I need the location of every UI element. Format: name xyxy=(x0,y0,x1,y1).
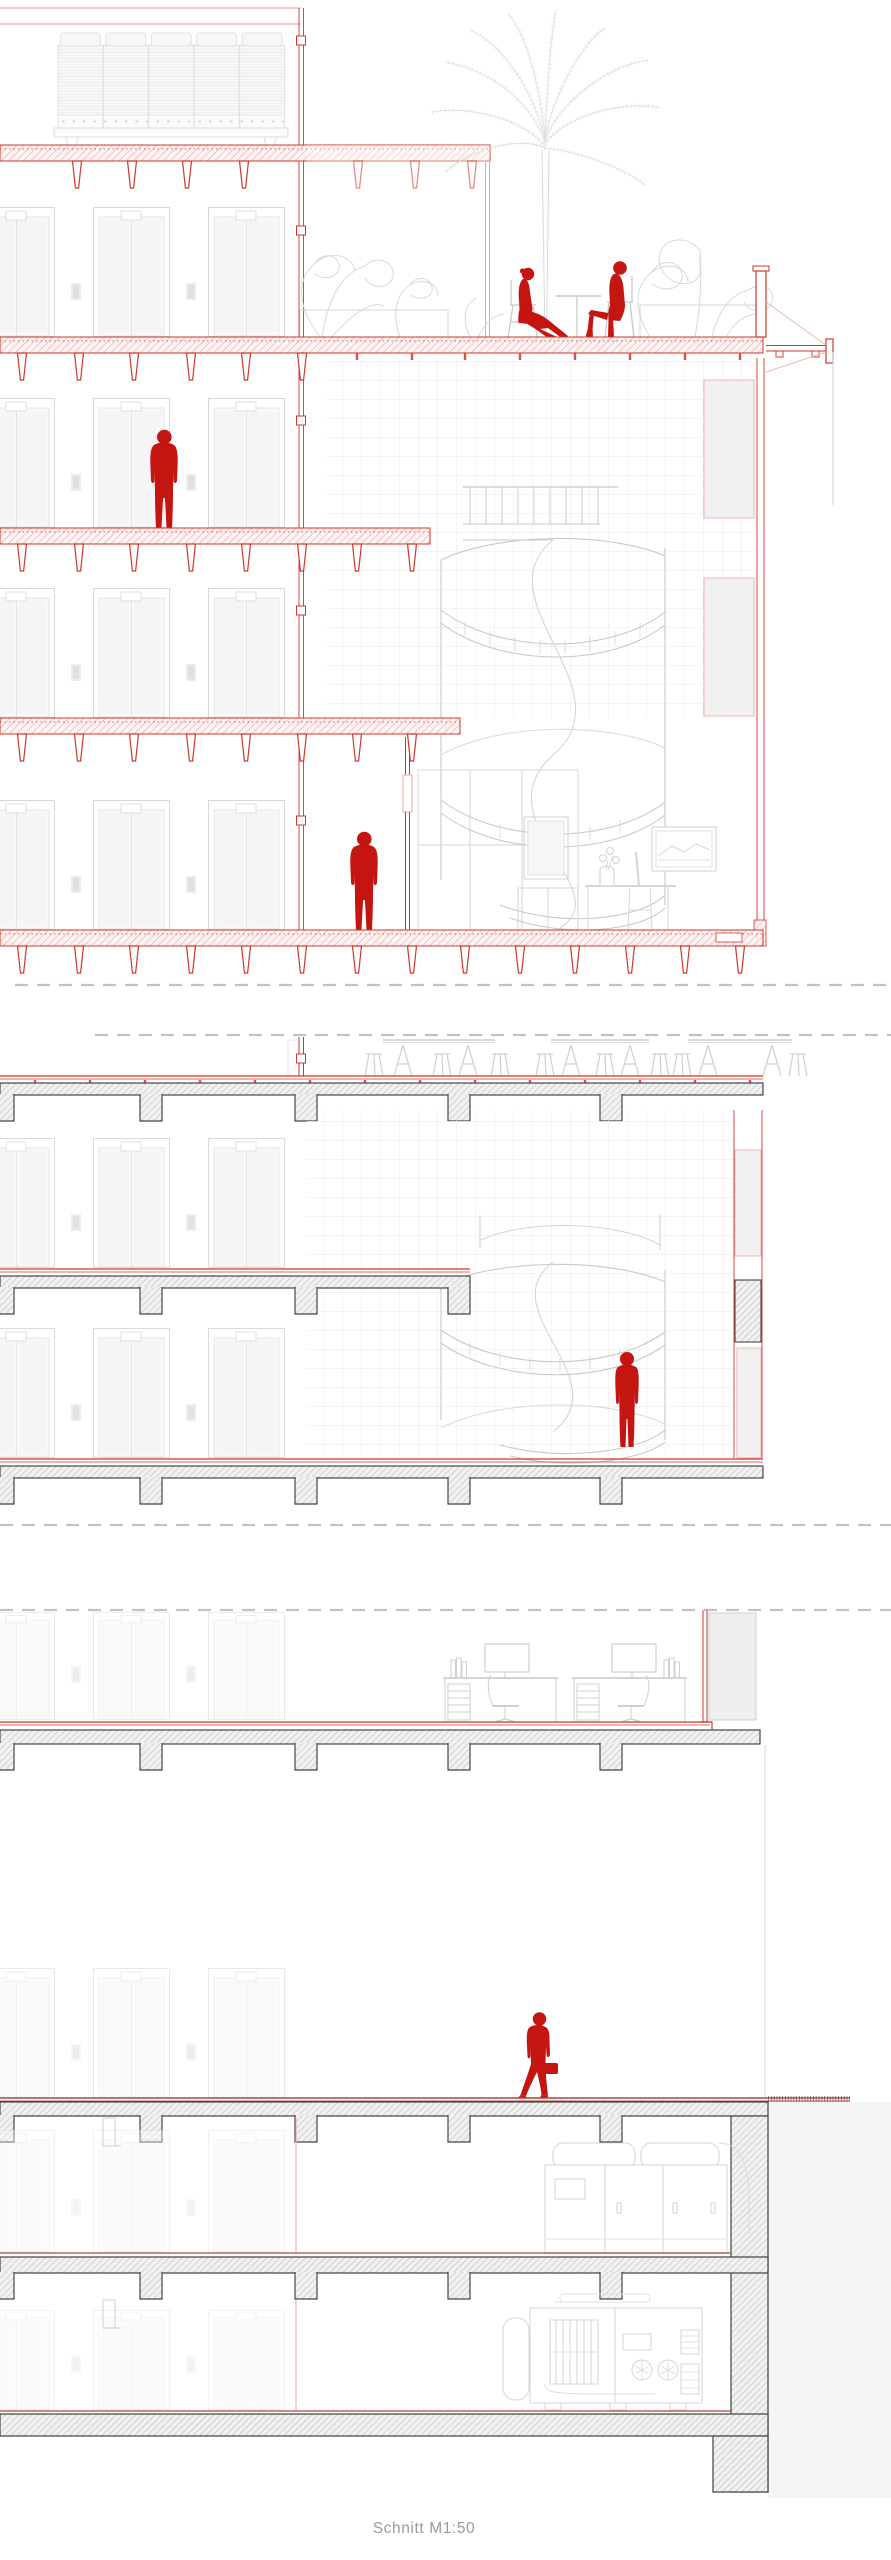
generator-unit xyxy=(503,2294,702,2410)
elevator-doors-s3-office xyxy=(0,1612,285,1719)
elevator-doors-s2-upper xyxy=(0,1139,285,1268)
architectural-section-drawing: Schnitt M1:50 xyxy=(0,0,891,2560)
elevator-doors-level-4 xyxy=(0,208,285,337)
air-handling-unit xyxy=(543,2143,749,2253)
elevator-doors-level-1 xyxy=(0,801,285,930)
right-facade-section-2 xyxy=(734,1110,762,1458)
elevator-doors-level-3 xyxy=(0,399,285,528)
earth-fill xyxy=(768,2102,891,2498)
drawing-caption: Schnitt M1:50 xyxy=(373,2520,476,2537)
elevator-doors-ground xyxy=(0,1969,285,2098)
elevator-doors-level-2 xyxy=(0,589,285,718)
elevator-doors-s2-lower xyxy=(0,1329,285,1458)
drawing-sheet: Schnitt M1:50 xyxy=(0,0,891,2560)
rooftop-chiller-unit xyxy=(54,33,288,152)
